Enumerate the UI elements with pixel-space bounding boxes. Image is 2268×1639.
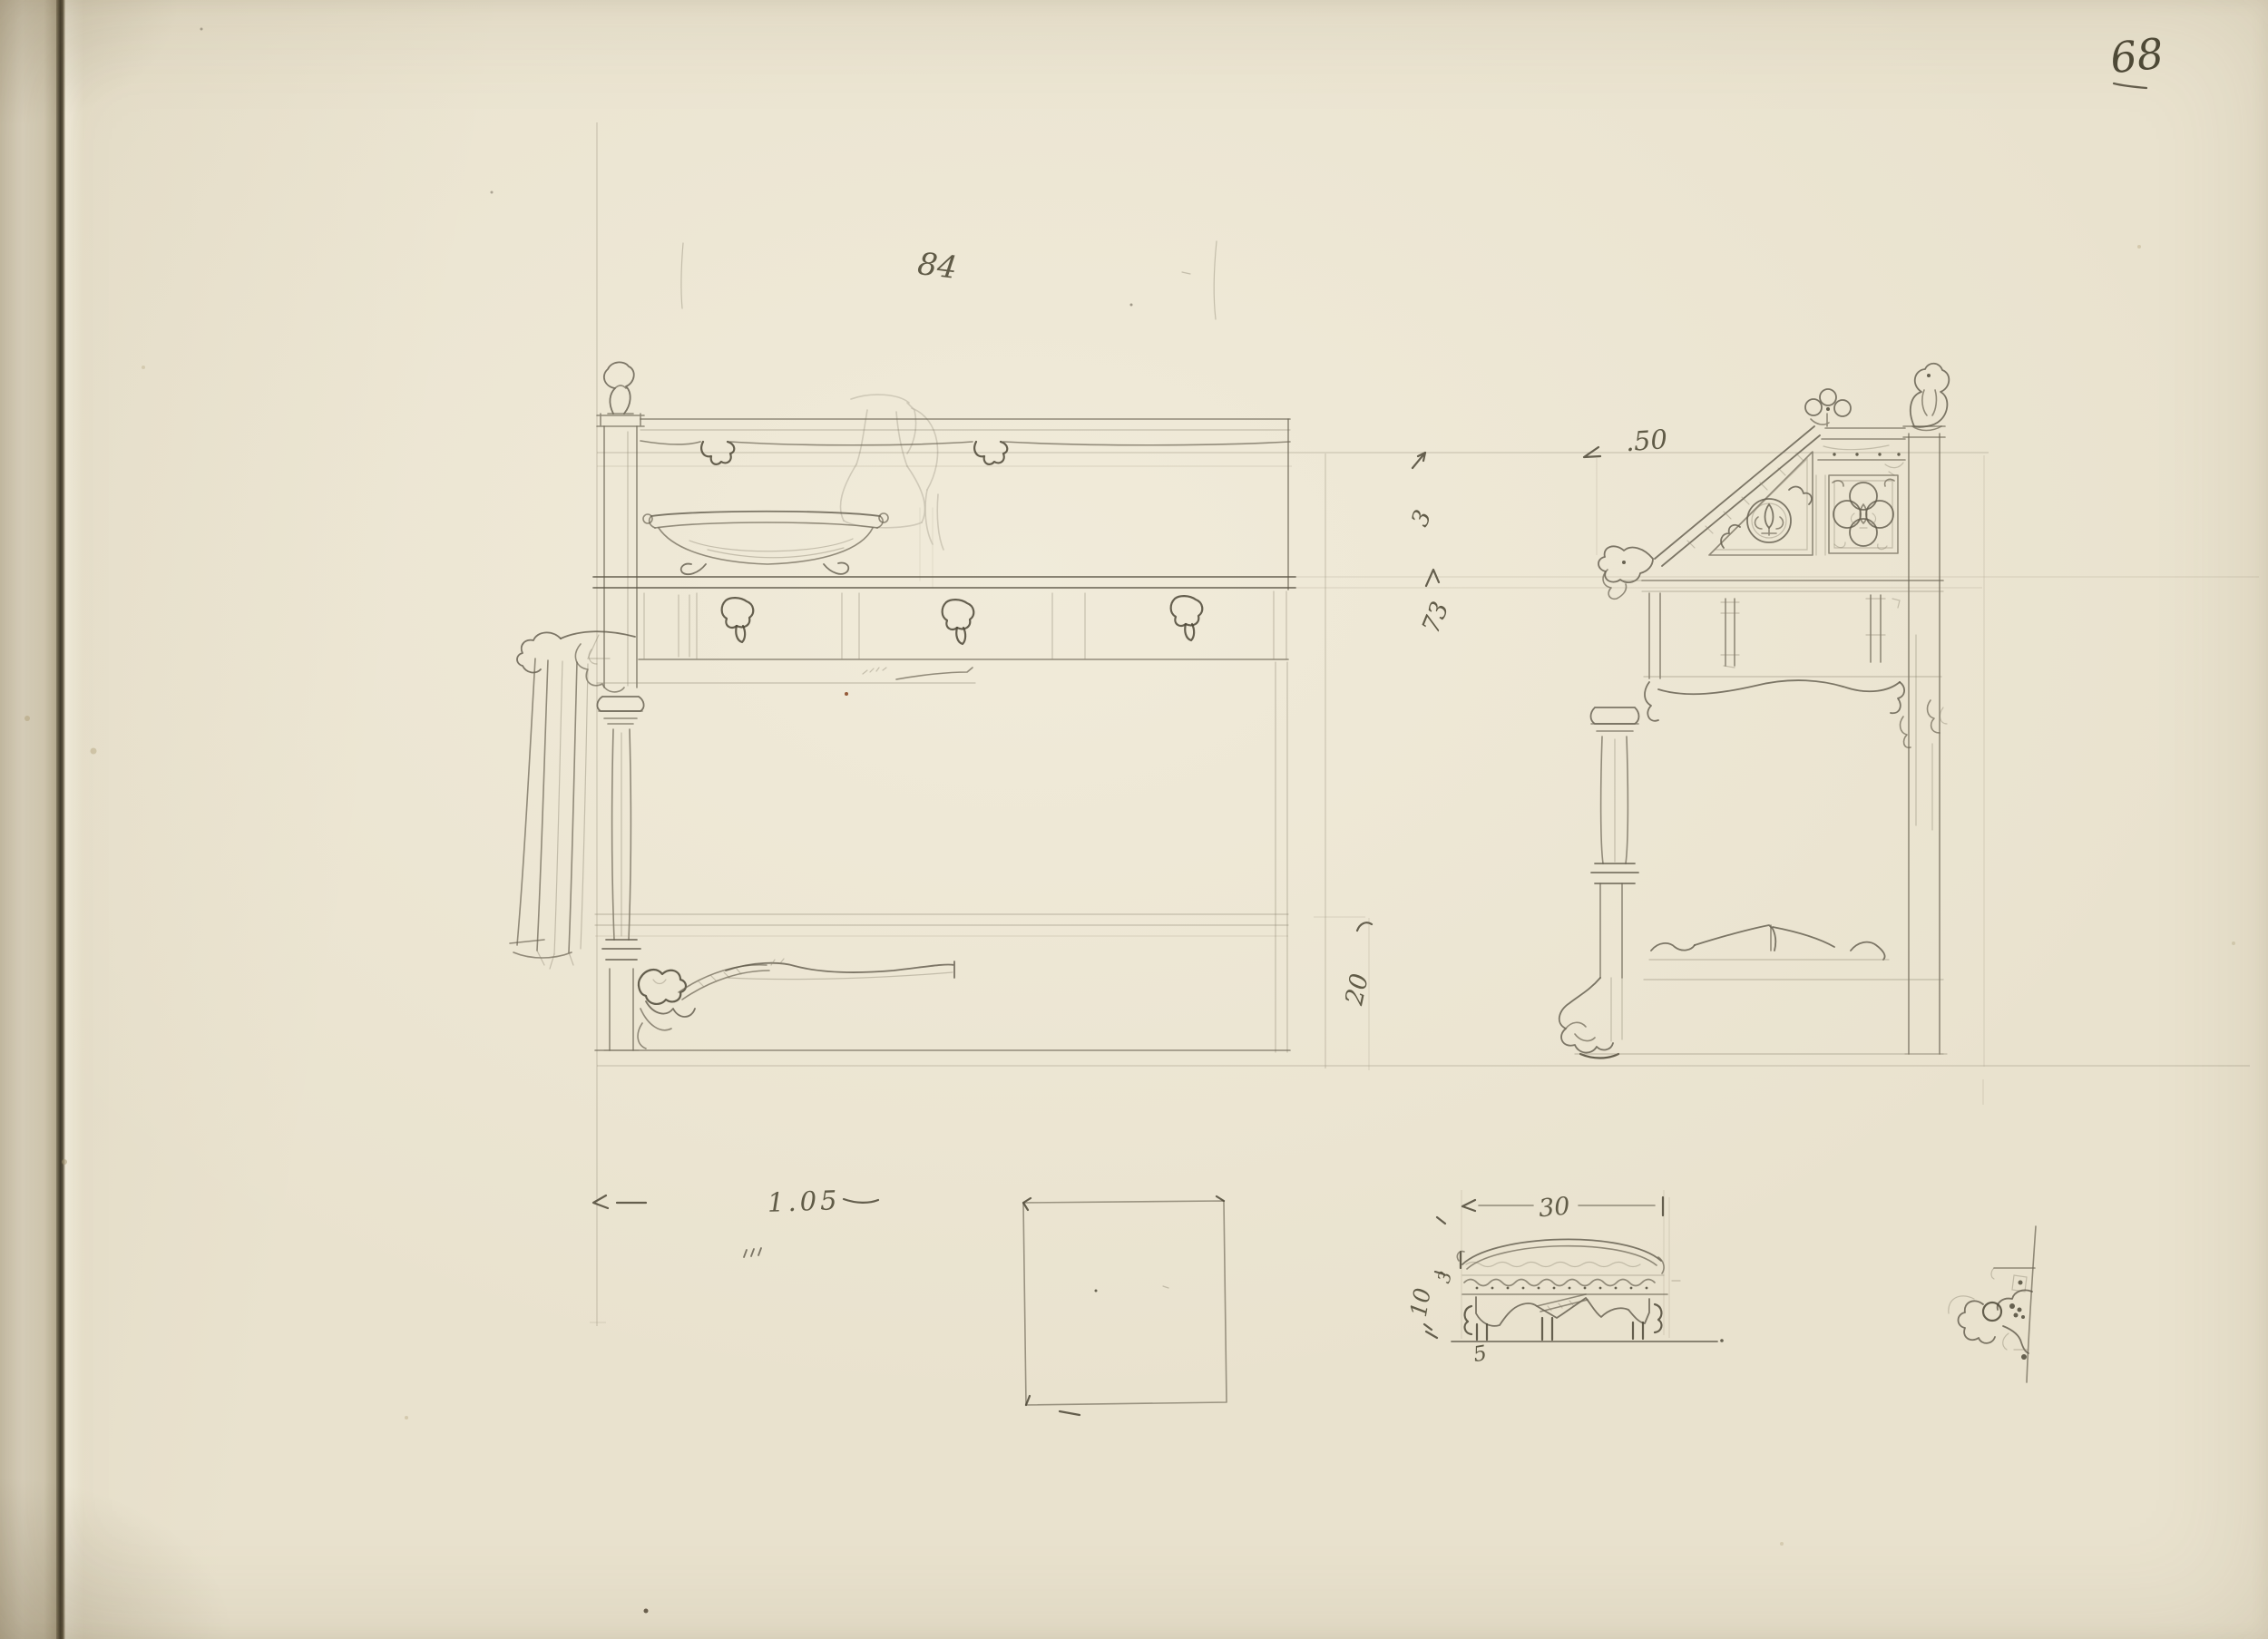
plan-square-sketch: [1023, 1196, 1227, 1415]
tracery-triangle-panel: [1709, 452, 1813, 555]
pencil-drawing-layer: 68 84 .50 3 73 20 1.05 30 10 3 5: [0, 0, 2268, 1639]
front-left-leg-sketch: [597, 697, 643, 1050]
dimension-marks: [593, 83, 2146, 1257]
front-elevation-sketch: [510, 362, 1295, 1052]
dimension-section-width-text: 30: [1538, 1192, 1571, 1223]
dimension-depth-text: .50: [1625, 424, 1668, 457]
side-elevation-sketch: [1559, 364, 1950, 1059]
dimension-overall-width-text: 1.05: [767, 1185, 841, 1218]
side-apron-sketch: [1645, 635, 1947, 830]
dimension-section-base-text: 5: [1471, 1341, 1489, 1367]
drawer-band-sketch: [597, 591, 1288, 696]
side-front-leg-sketch: [1559, 707, 1639, 1059]
construction-guidelines: [590, 122, 2259, 1326]
bracket-profile-sketch: [1949, 1226, 2036, 1382]
tracery-square-panel: [1816, 475, 1898, 555]
cresting-section-sketch: [1424, 1190, 1724, 1342]
page-number-text: 68: [2108, 29, 2166, 83]
lower-shelf-sketch: [595, 662, 1290, 1052]
basin-sketch: [643, 512, 888, 574]
ewer-sketch: [840, 395, 943, 588]
dimension-back-height-text: 73: [1417, 598, 1455, 637]
foxing-spots: [24, 28, 2235, 1614]
figure-number-note: 84: [915, 246, 959, 287]
side-lower-shelf-sketch: [1575, 925, 1947, 1054]
dimension-section-height-text: 10: [1405, 1286, 1436, 1319]
trefoil-finial-sketch: [1805, 389, 1851, 426]
handwritten-annotations: 68 84 .50 3 73 20 1.05 30 10 3 5: [767, 29, 2165, 1368]
dimension-back-upper-text: 3: [1406, 506, 1437, 531]
towel-rail-sketch: [510, 631, 635, 969]
dimension-section-moulding-text: 3: [1434, 1269, 1457, 1285]
sketchbook-page: 68 84 .50 3 73 20 1.05 30 10 3 5: [0, 0, 2268, 1639]
